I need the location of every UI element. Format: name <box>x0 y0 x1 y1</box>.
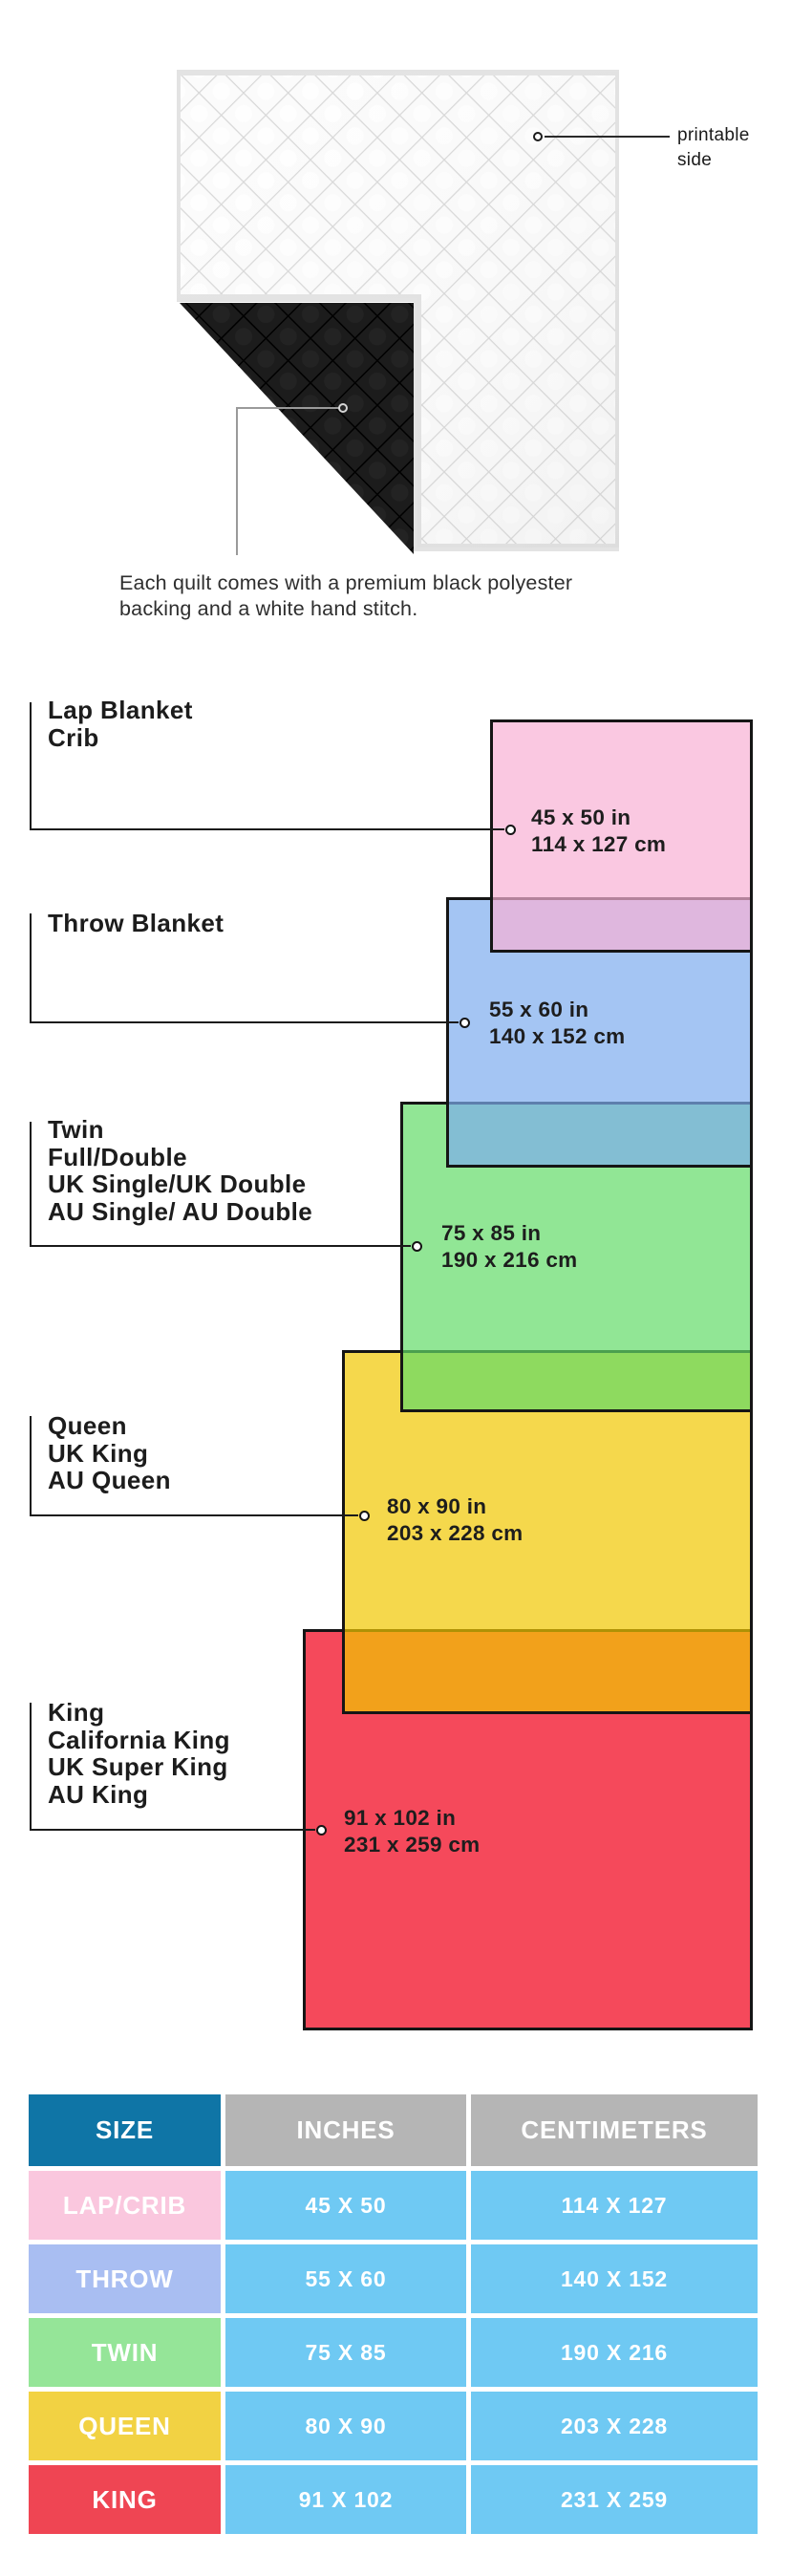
table-cell-inches-LAP/CRIB: 45 X 50 <box>225 2171 466 2240</box>
table-cell-cm-TWIN: 190 X 216 <box>471 2318 758 2387</box>
leader-marker-queen <box>359 1511 370 1521</box>
leader-marker-twin <box>412 1241 422 1252</box>
backing-leader-horizontal <box>236 407 339 409</box>
leader-vertical-queen <box>30 1416 32 1516</box>
table-cell-size-QUEEN: QUEEN <box>29 2392 221 2460</box>
table-cell-cm-QUEEN: 203 X 228 <box>471 2392 758 2460</box>
table-cell-inches-THROW: 55 X 60 <box>225 2244 466 2313</box>
table-cell-size-THROW: THROW <box>29 2244 221 2313</box>
table-cell-size-KING: KING <box>29 2465 221 2534</box>
leader-horizontal-lap <box>30 828 504 830</box>
table-cell-cm-THROW: 140 X 152 <box>471 2244 758 2313</box>
size-label-king: KingCalifornia KingUK Super KingAU King <box>48 1699 230 1808</box>
quilt-size-infographic: printableside Each quilt comes with a pr… <box>0 0 791 2576</box>
leader-horizontal-throw <box>30 1021 459 1023</box>
leader-marker-throw <box>460 1018 470 1028</box>
backing-leader-vertical <box>236 407 238 555</box>
size-dimensions-lap: 45 x 50 in114 x 127 cm <box>531 805 666 858</box>
printable-side-label: printableside <box>677 123 750 173</box>
backing-caption: Each quilt comes with a premium black po… <box>119 570 572 622</box>
table-cell-size-LAP/CRIB: LAP/CRIB <box>29 2171 221 2240</box>
printable-side-leader-line <box>545 136 670 138</box>
table-cell-inches-TWIN: 75 X 85 <box>225 2318 466 2387</box>
size-dimensions-king: 91 x 102 in231 x 259 cm <box>344 1805 480 1858</box>
table-cell-cm-LAP/CRIB: 114 X 127 <box>471 2171 758 2240</box>
size-label-twin: TwinFull/DoubleUK Single/UK DoubleAU Sin… <box>48 1116 312 1225</box>
size-dimensions-twin: 75 x 85 in190 x 216 cm <box>441 1220 577 1274</box>
black-backing-fold <box>180 303 414 554</box>
table-header-centimeters: CENTIMETERS <box>471 2094 758 2166</box>
leader-vertical-king <box>30 1703 32 1831</box>
size-dimensions-queen: 80 x 90 in203 x 228 cm <box>387 1493 523 1547</box>
size-label-throw: Throw Blanket <box>48 910 224 937</box>
table-header-inches: INCHES <box>225 2094 466 2166</box>
table-cell-cm-KING: 231 X 259 <box>471 2465 758 2534</box>
table-cell-size-TWIN: TWIN <box>29 2318 221 2387</box>
leader-marker-king <box>316 1825 327 1835</box>
leader-horizontal-queen <box>30 1514 358 1516</box>
table-cell-inches-KING: 91 X 102 <box>225 2465 466 2534</box>
leader-vertical-twin <box>30 1122 32 1247</box>
black-backing-marker <box>338 403 348 413</box>
table-header-size: SIZE <box>29 2094 221 2166</box>
size-dimensions-throw: 55 x 60 in140 x 152 cm <box>489 997 625 1050</box>
leader-vertical-lap <box>30 702 32 830</box>
size-table: SIZEINCHESCENTIMETERSLAP/CRIB45 X 50114 … <box>29 2094 758 2534</box>
quilt-illustration <box>177 70 619 567</box>
leader-horizontal-twin <box>30 1245 411 1247</box>
leader-vertical-throw <box>30 913 32 1022</box>
leader-marker-lap <box>505 825 516 835</box>
table-cell-inches-QUEEN: 80 X 90 <box>225 2392 466 2460</box>
size-label-lap: Lap BlanketCrib <box>48 697 193 751</box>
printable-side-marker <box>533 132 543 141</box>
size-label-queen: QueenUK KingAU Queen <box>48 1412 171 1494</box>
leader-horizontal-king <box>30 1829 315 1831</box>
